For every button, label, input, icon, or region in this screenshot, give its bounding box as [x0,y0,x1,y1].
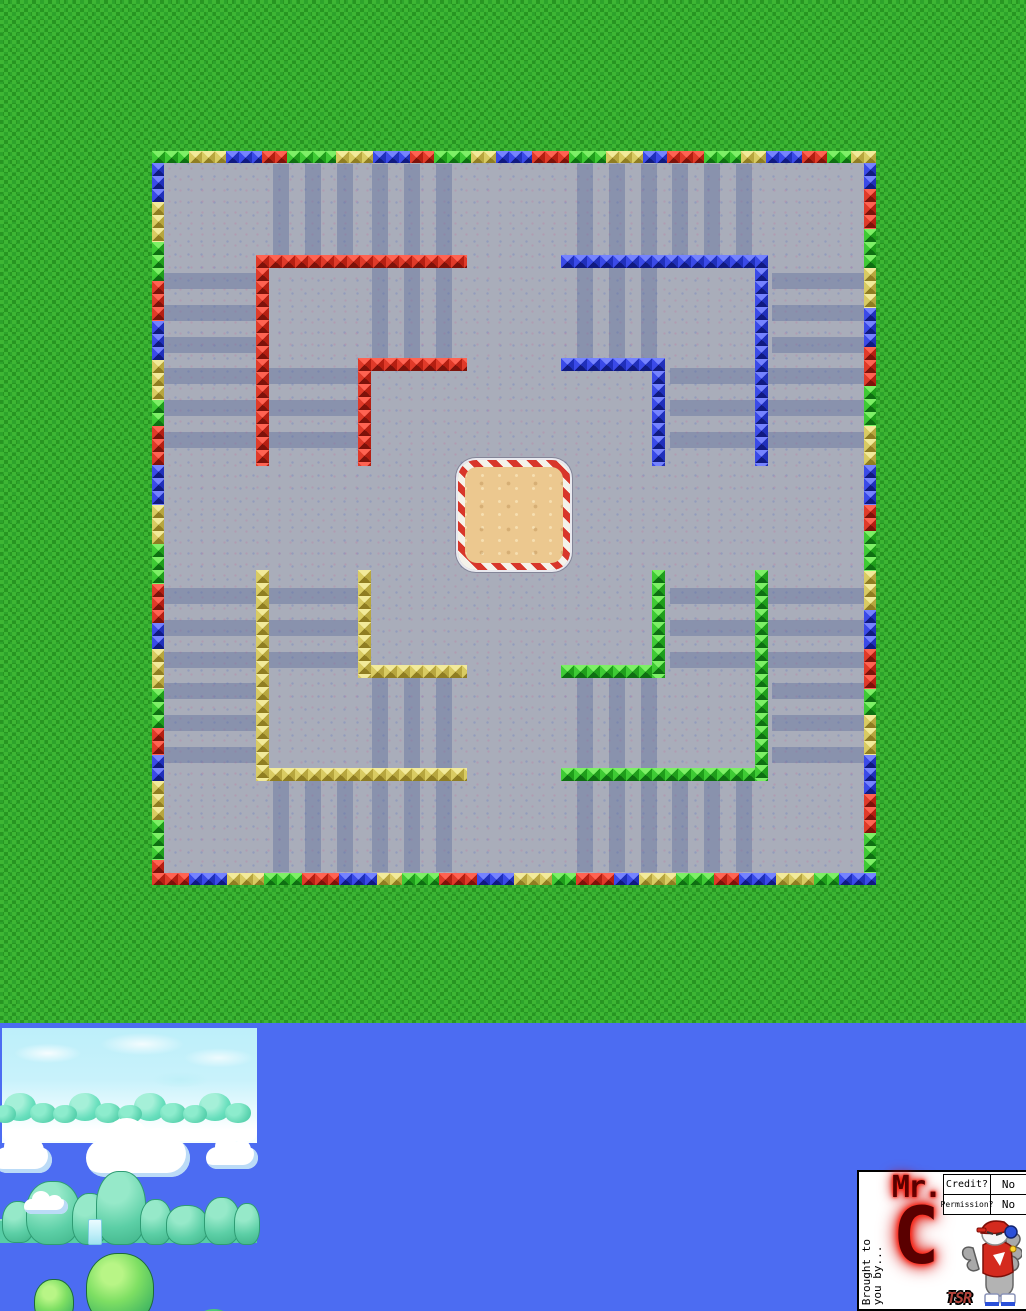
battle-arena [152,151,876,885]
border-segment-yellow [776,873,813,885]
border-segment-yellow [152,649,164,688]
floor-stripe [704,164,720,255]
floor-stripe [273,164,289,255]
border-segment-green [864,833,876,872]
bump2-tile [183,1105,207,1123]
sand-pit-floor [465,467,563,563]
permission-value: No [991,1198,1026,1211]
blue-stair-wall [755,255,768,466]
cloud-tile [86,1139,190,1177]
red-stair-wall [358,358,371,466]
border-segment-blue [189,873,226,885]
permission-row: Permission? No [944,1194,1026,1214]
border-segment-green [434,151,471,163]
border-segment-blue [373,151,410,163]
border-segment-green [864,229,876,268]
red-stair-wall [256,255,467,268]
border-segment-green [814,873,839,885]
credit-row: Credit? No [944,1175,1026,1194]
blue-stair-wall [561,358,665,371]
border-segment-yellow [377,873,402,885]
cloud-tile [0,1147,52,1173]
floor-stripe [305,164,321,255]
red-stair-wall [358,358,467,371]
border-segment-blue [152,465,164,504]
border-segment-green [864,689,876,715]
border-segment-yellow [152,360,164,399]
border-segment-blue [839,873,876,885]
floor-stripe [672,164,688,255]
border-segment-red [152,873,189,885]
floor-stripe [273,781,289,872]
border-segment-green [264,873,301,885]
border-segment-blue [864,465,876,504]
border-segment-green [864,531,876,570]
floor-stripe [736,164,752,255]
border-segment-yellow [864,426,876,465]
cloud-tile [206,1147,258,1169]
green-stair-wall [561,665,665,678]
border-segment-green [864,386,876,425]
green-stair-wall [561,768,768,781]
border-segment-blue [864,308,876,347]
border-segment-red [262,151,287,163]
waterfall-tile [88,1219,102,1245]
hill-tile [96,1171,146,1245]
border-segment-red [439,873,476,885]
border-segment-red [576,873,613,885]
border-segment-red [714,873,739,885]
border-segment-yellow [152,781,164,820]
arena-border-right [864,163,876,873]
floor-stripe [164,715,256,731]
credit-box: Brought to you by... Mr. C Credit? No Pe… [857,1170,1026,1311]
border-segment-red [864,649,876,688]
credit-value: No [991,1178,1026,1191]
border-segment-red [802,151,827,163]
border-segment-red [410,151,435,163]
border-segment-green [704,151,741,163]
floor-stripe [305,781,321,872]
hill-tile [166,1205,208,1245]
border-segment-yellow [864,268,876,307]
border-segment-yellow [864,571,876,610]
floor-stripe [704,781,720,872]
hill-tile [234,1203,260,1245]
yellow-stair-wall [358,570,371,678]
border-segment-blue [152,163,164,202]
border-segment-blue [496,151,533,163]
border-segment-blue [152,755,164,781]
border-segment-red [152,728,164,754]
mr-c-logo-c: C [883,1198,949,1276]
border-segment-yellow [851,151,876,163]
border-segment-yellow [227,873,264,885]
brought-to-you-by-text: Brought to you by... [861,1239,883,1305]
border-segment-yellow [152,505,164,544]
border-segment-blue [739,873,776,885]
border-segment-red [152,860,164,873]
border-segment-blue [614,873,639,885]
border-segment-yellow [189,151,226,163]
border-segment-yellow [741,151,766,163]
border-segment-blue [864,163,876,189]
border-segment-red [864,794,876,833]
yellow-stair-wall [256,570,269,781]
grass-field [0,0,1026,1023]
floor-stripe [772,273,864,289]
border-segment-blue [152,623,164,649]
border-segment-green [152,400,164,426]
border-segment-green [152,689,164,728]
border-segment-green [569,151,606,163]
background-tiles-band: Brought to you by... Mr. C Credit? No Pe… [0,1023,1026,1311]
border-segment-blue [864,755,876,794]
border-segment-yellow [471,151,496,163]
cloud-tile [24,1199,68,1214]
credit-table: Credit? No Permission? No [943,1174,1026,1215]
floor-stripe [337,164,353,255]
arena-border-bottom [152,873,876,885]
floor-stripe [164,305,256,321]
credit-label: Credit? [944,1175,991,1194]
border-segment-blue [864,610,876,649]
border-segment-yellow [606,151,643,163]
floor-stripe [772,715,864,731]
floor-stripe [337,781,353,872]
border-segment-red [864,347,876,386]
arena-border-top [152,151,876,163]
border-segment-yellow [336,151,373,163]
sprite-sheet-page: Brought to you by... Mr. C Credit? No Pe… [0,0,1026,1311]
floor-stripe [772,747,864,763]
green-stair-wall [652,570,665,678]
border-segment-yellow [152,202,164,241]
border-segment-red [152,584,164,623]
border-segment-blue [226,151,263,163]
border-segment-yellow [514,873,551,885]
yellow-stair-wall [256,768,467,781]
floor-stripe [164,747,256,763]
border-segment-green [676,873,713,885]
bump2-tile [53,1105,77,1123]
border-segment-blue [643,151,668,163]
border-segment-red [302,873,339,885]
bump2-tile [225,1103,251,1123]
mr-c-logo: Mr. C [883,1172,949,1276]
blue-stair-wall [652,358,665,466]
floor-stripe [736,781,752,872]
floor-stripe [772,305,864,321]
border-segment-red [864,505,876,531]
border-segment-blue [339,873,376,885]
border-segment-red [532,151,569,163]
border-segment-green [152,242,164,281]
floor-stripe [164,337,256,353]
red-stair-wall [256,255,269,466]
border-segment-green [152,544,164,583]
border-segment-yellow [864,715,876,754]
yellow-stair-wall [358,665,467,678]
permission-label: Permission? [944,1195,991,1214]
border-segment-green [287,151,336,163]
border-segment-blue [152,321,164,360]
border-segment-red [152,426,164,465]
floor-stripe [164,273,256,289]
border-segment-red [667,151,704,163]
border-segment-yellow [639,873,676,885]
floor-stripe [164,683,256,699]
floor-stripe [772,337,864,353]
floor-stripe [672,781,688,872]
blue-stair-wall [561,255,768,268]
border-segment-green [827,151,852,163]
border-segment-blue [477,873,514,885]
border-segment-red [864,189,876,228]
tsr-logo: TSR [947,1289,971,1307]
border-segment-green [152,820,164,859]
border-segment-green [552,873,577,885]
border-segment-red [152,281,164,320]
sand-pit [458,460,570,570]
border-segment-blue [766,151,803,163]
arena-border-left [152,163,164,873]
border-segment-green [152,151,189,163]
floor-stripe [772,683,864,699]
border-segment-green [402,873,439,885]
tree-tile [34,1279,74,1311]
green-stair-wall [755,570,768,781]
